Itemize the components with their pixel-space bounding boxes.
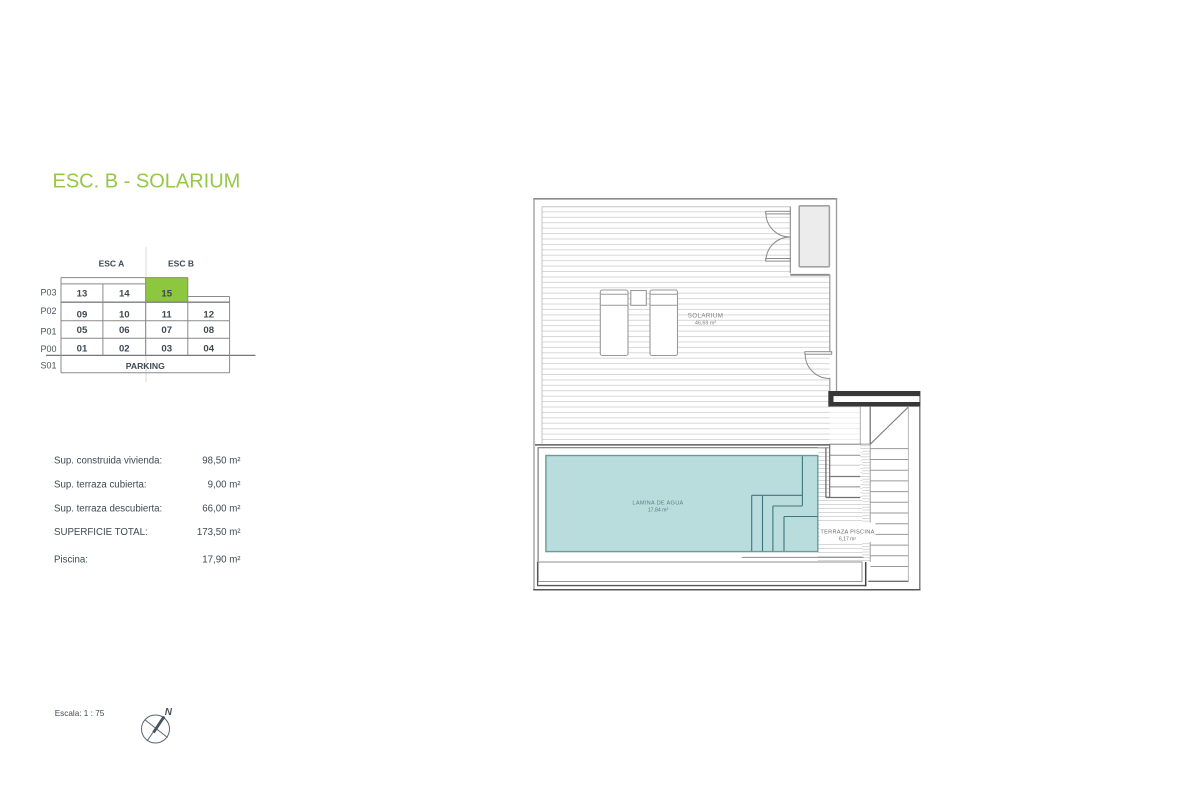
svg-text:P00: P00: [41, 344, 57, 354]
svg-text:11: 11: [162, 309, 173, 320]
svg-text:12: 12: [203, 309, 214, 320]
svg-text:PARKING: PARKING: [126, 361, 165, 371]
svg-text:SOLARIUM: SOLARIUM: [688, 313, 724, 320]
svg-text:66,00 m²: 66,00 m²: [202, 504, 241, 515]
svg-text:05: 05: [77, 325, 88, 336]
svg-text:46,69 m²: 46,69 m²: [695, 321, 716, 327]
svg-text:Sup. terraza cubierta:: Sup. terraza cubierta:: [54, 480, 147, 491]
svg-text:Sup. construida vivienda:: Sup. construida vivienda:: [54, 456, 162, 467]
svg-text:TERRAZA PISCINA: TERRAZA PISCINA: [820, 530, 874, 536]
svg-text:15: 15: [161, 288, 172, 299]
svg-text:ESC B: ESC B: [168, 258, 194, 268]
svg-text:P02: P02: [41, 306, 57, 316]
svg-text:N: N: [165, 707, 173, 718]
svg-text:06: 06: [119, 325, 130, 336]
svg-text:02: 02: [119, 343, 130, 354]
svg-text:13: 13: [77, 288, 88, 299]
svg-text:P01: P01: [41, 326, 57, 336]
svg-text:173,50 m²: 173,50 m²: [197, 527, 241, 538]
svg-text:14: 14: [119, 288, 130, 299]
svg-text:9,00 m²: 9,00 m²: [208, 480, 242, 491]
svg-text:07: 07: [161, 325, 172, 336]
svg-text:ESC A: ESC A: [99, 258, 125, 268]
svg-text:SUPERFICIE TOTAL:: SUPERFICIE TOTAL:: [54, 527, 148, 538]
svg-text:03: 03: [161, 343, 172, 354]
svg-text:P03: P03: [41, 288, 57, 298]
svg-text:10: 10: [119, 309, 130, 320]
svg-text:01: 01: [77, 343, 88, 354]
svg-text:04: 04: [203, 343, 214, 354]
svg-text:ESC. B - SOLARIUM: ESC. B - SOLARIUM: [53, 170, 241, 192]
svg-text:S01: S01: [41, 361, 57, 371]
svg-text:08: 08: [203, 325, 214, 336]
svg-text:Sup. terraza descubierta:: Sup. terraza descubierta:: [54, 504, 162, 515]
svg-text:98,50 m²: 98,50 m²: [202, 456, 241, 467]
svg-text:LAMINA DE AGUA: LAMINA DE AGUA: [632, 500, 683, 506]
svg-text:Escala: 1 : 75: Escala: 1 : 75: [55, 709, 105, 718]
svg-text:09: 09: [77, 309, 88, 320]
svg-text:Piscina:: Piscina:: [54, 555, 88, 566]
svg-text:17,84 m²: 17,84 m²: [648, 508, 669, 514]
svg-text:17,90 m²: 17,90 m²: [202, 555, 241, 566]
svg-text:6,17 m²: 6,17 m²: [839, 537, 856, 543]
